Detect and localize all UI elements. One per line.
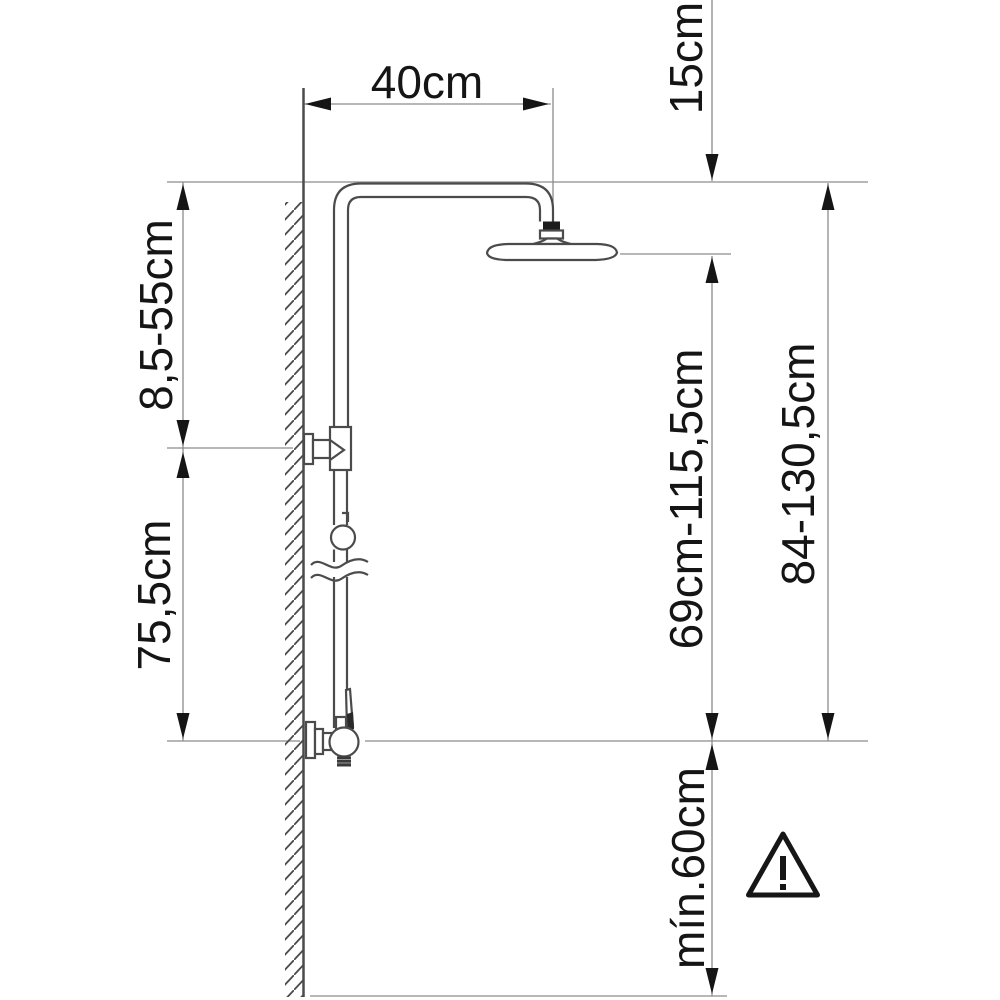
arrow-down [822,713,835,739]
label-riser-range: 69cm-115,5cm [660,349,712,650]
arrow-up [177,452,190,478]
wall-bracket [304,427,351,470]
arrow-down [177,713,190,739]
break-line-upper [311,559,368,567]
exclamation-dot [780,884,786,890]
mixer-body [330,728,359,757]
arrow-left [305,98,331,111]
arrow-down [706,713,719,739]
hose-hook [342,513,348,522]
mixer-connector-outer [315,729,323,754]
dimension-labels: 40cm 15cm 8,5-55cm 75,5cm 69cm-115,5cm 8… [128,2,824,969]
drawing-canvas: 40cm 15cm 8,5-55cm 75,5cm 69cm-115,5cm 8… [0,0,1000,1000]
label-head-offset: 15cm [660,2,712,114]
wall [285,88,304,997]
break-line-lower [311,572,368,580]
bracket-wall-plate [304,434,313,464]
label-upper-bracket-range: 8,5-55cm [130,219,182,411]
arrow-down [706,968,719,994]
dimension-arrows [177,98,835,995]
arrow-right [523,98,549,111]
arrow-up [177,184,190,210]
label-overall-range: 84-130,5cm [772,343,824,586]
label-arm-reach: 40cm [371,56,483,108]
head-nut [540,231,563,239]
arrow-up [822,184,835,210]
arrow-down [177,420,190,446]
head-disc [487,244,617,260]
slider-ring [331,526,355,550]
label-min-clearance: mín.60cm [662,767,714,969]
label-bracket-to-mixer: 75,5cm [128,520,180,671]
head-connector-ring [543,222,560,231]
technical-drawing-page: 40cm 15cm 8,5-55cm 75,5cm 69cm-115,5cm 8… [0,0,1000,1000]
bracket-connector [313,440,330,458]
mixer-outlet [337,757,351,767]
shower-head [487,222,617,261]
mixer-valve [306,689,359,767]
reference-lines [167,0,868,996]
wall-hatching [285,202,303,997]
riser-pipe [311,470,368,728]
arrow-up [706,257,719,283]
mixer-wall-plate [306,722,315,758]
warning-triangle-icon [749,834,818,895]
shower-arm [334,184,553,428]
arrow-up [706,744,719,770]
arrow-down [706,154,719,180]
